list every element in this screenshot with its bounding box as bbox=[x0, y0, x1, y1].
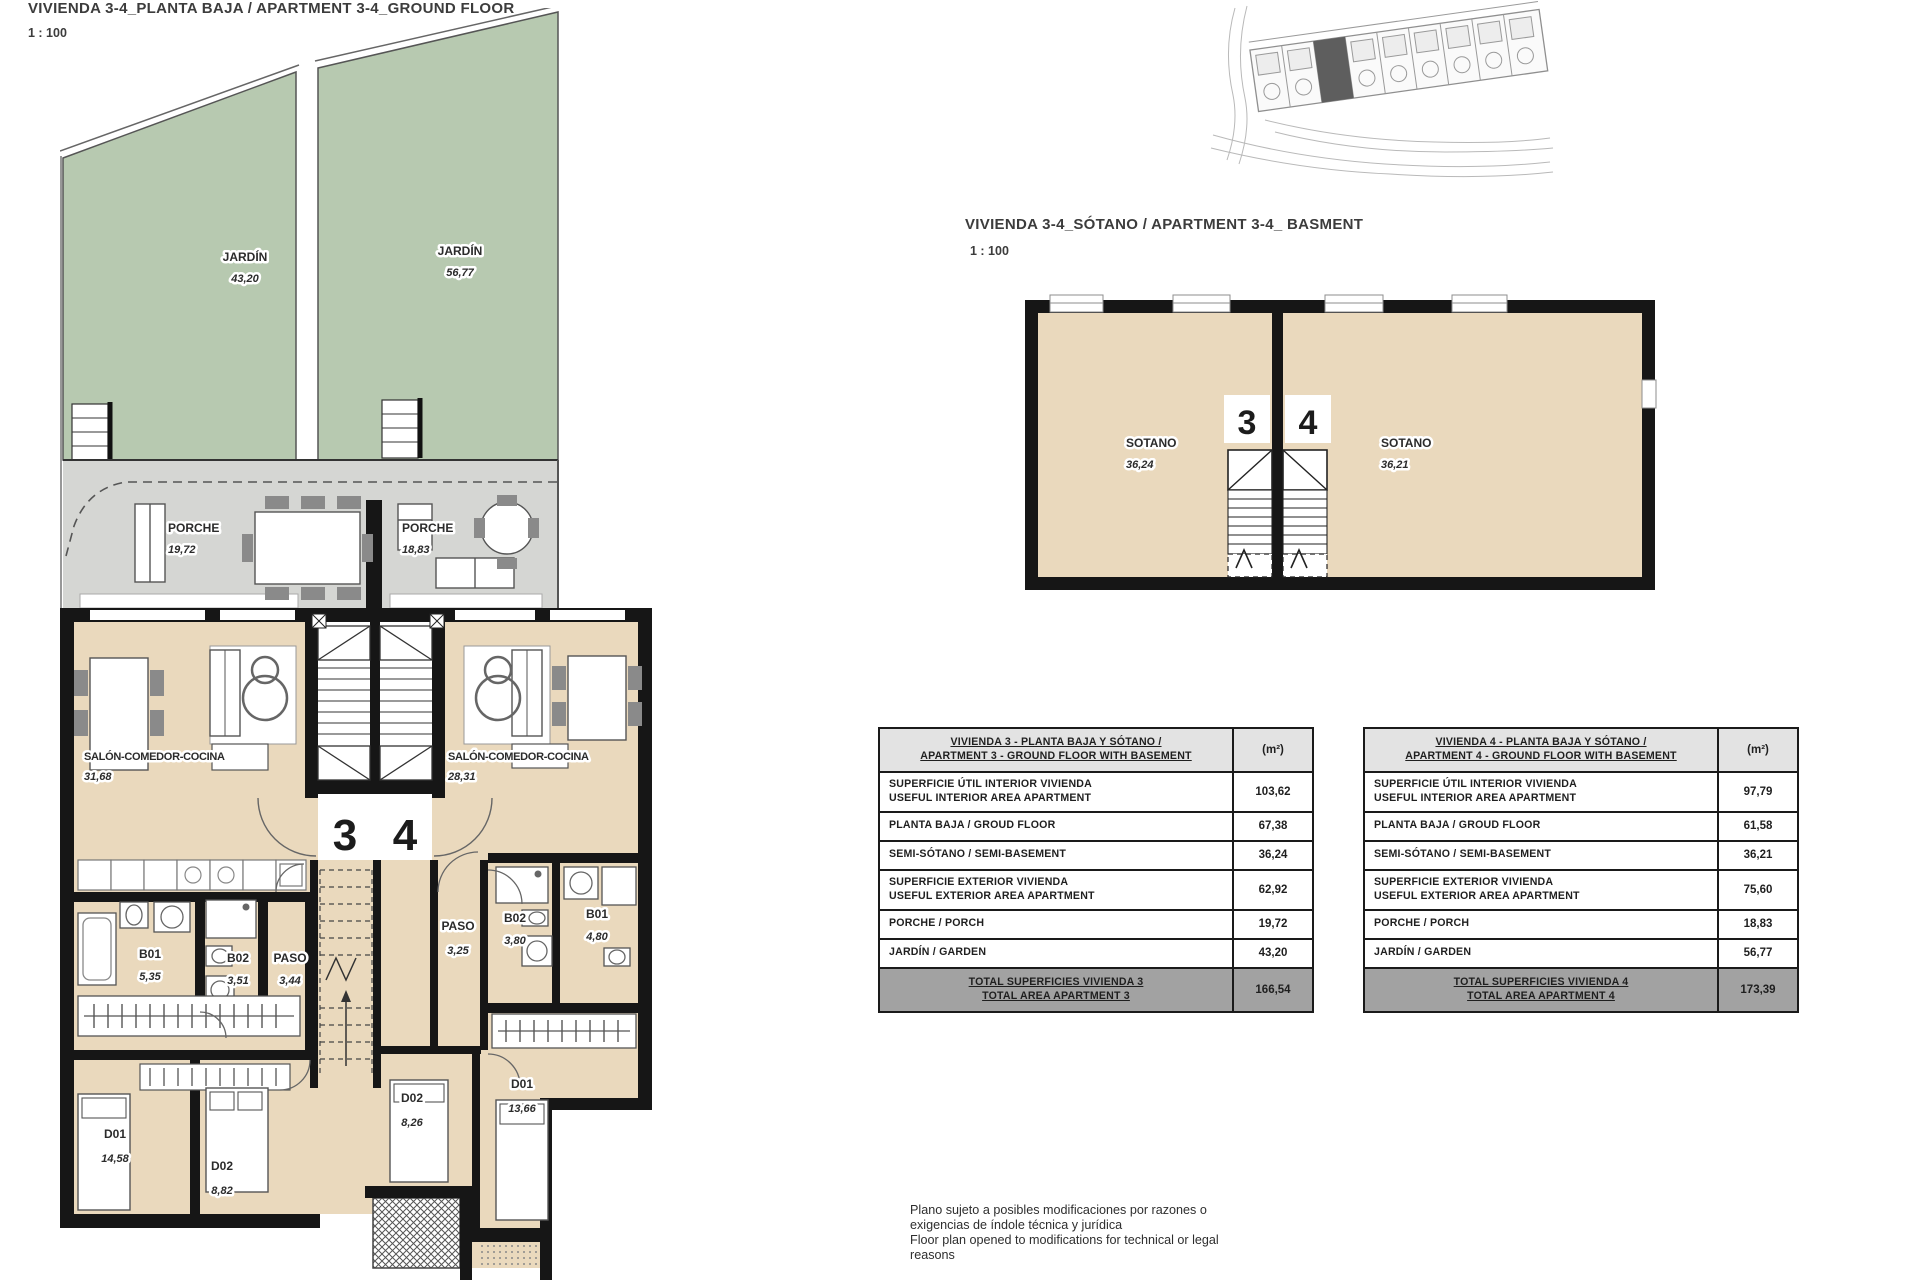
b01-4-area: 4,80 bbox=[585, 931, 608, 943]
d02-4-label: D02 bbox=[401, 1091, 423, 1105]
d01-3-area: 14,58 bbox=[101, 1153, 129, 1165]
b01-4-label: B01 bbox=[586, 907, 608, 921]
table3-total-value: 166,54 bbox=[1232, 969, 1312, 1011]
basement-title: VIVIENDA 3-4_SÓTANO / APARTMENT 3-4_ BAS… bbox=[965, 216, 1363, 233]
wardrobe-d01-3 bbox=[140, 1064, 290, 1090]
basement-unit4-number: 4 bbox=[1299, 404, 1318, 442]
basement-right-window bbox=[1642, 380, 1656, 408]
d02-3-label: D02 bbox=[211, 1159, 233, 1173]
d01-4-area: 13,66 bbox=[508, 1103, 536, 1115]
paso-4-label: PASO bbox=[441, 919, 474, 933]
d02-4-area: 8,26 bbox=[401, 1117, 423, 1129]
d01-4-label: D01 bbox=[511, 1077, 533, 1091]
basement-scale: 1 : 100 bbox=[970, 244, 1009, 258]
garden3-area: 43,20 bbox=[230, 273, 259, 285]
garden-stairs-unit3 bbox=[72, 402, 110, 460]
table-row: PORCHE / PORCH 19,72 bbox=[880, 911, 1312, 940]
wardrobe-unit3 bbox=[78, 996, 300, 1036]
porch4-area: 18,83 bbox=[402, 544, 430, 556]
table3-total-row: TOTAL SUPERFICIES VIVIENDA 3 TOTAL AREA … bbox=[880, 969, 1312, 1011]
table-row: SUPERFICIE ÚTIL INTERIOR VIVIENDA USEFUL… bbox=[880, 773, 1312, 813]
paso-3-label: PASO bbox=[273, 951, 306, 965]
area-table-vivienda-3: VIVIENDA 3 - PLANTA BAJA Y SÓTANO / APAR… bbox=[878, 727, 1314, 1013]
table4-title-line2: APARTMENT 4 - GROUND FLOOR WITH BASEMENT bbox=[1374, 750, 1708, 764]
basement-plan: 3 4 SOTANO 36,24 SOTANO 36,21 bbox=[1023, 292, 1668, 597]
sotano4-label: SOTANO bbox=[1381, 436, 1431, 450]
table3-unit: (m²) bbox=[1232, 729, 1312, 771]
salon4-area: 28,31 bbox=[447, 771, 476, 783]
table-row: SUPERFICIE EXTERIOR VIVIENDA USEFUL EXTE… bbox=[1365, 871, 1797, 911]
table4-total-value: 173,39 bbox=[1717, 969, 1797, 1011]
b02-3-label: B02 bbox=[227, 951, 249, 965]
paso-4-area: 3,25 bbox=[447, 945, 469, 957]
sotano4-area: 36,21 bbox=[1381, 459, 1409, 471]
table-row: SEMI-SÓTANO / SEMI-BASEMENT 36,21 bbox=[1365, 842, 1797, 871]
basement-unit3-number: 3 bbox=[1238, 404, 1257, 442]
patio-crosshatch bbox=[373, 1198, 460, 1268]
table4-total-row: TOTAL SUPERFICIES VIVIENDA 4 TOTAL AREA … bbox=[1365, 969, 1797, 1011]
disclaimer-line1: Plano sujeto a posibles modificaciones p… bbox=[910, 1203, 1250, 1218]
table-row: PLANTA BAJA / GROUD FLOOR 61,58 bbox=[1365, 813, 1797, 842]
table-row: SUPERFICIE ÚTIL INTERIOR VIVIENDA USEFUL… bbox=[1365, 773, 1797, 813]
table-row: SUPERFICIE EXTERIOR VIVIENDA USEFUL EXTE… bbox=[880, 871, 1312, 911]
garden4-area: 56,77 bbox=[446, 267, 474, 279]
wardrobe-unit4 bbox=[492, 1014, 636, 1048]
development-strip bbox=[1249, 2, 1548, 112]
table3-title-line2: APARTMENT 3 - GROUND FLOOR WITH BASEMENT bbox=[889, 750, 1223, 764]
table3-header: VIVIENDA 3 - PLANTA BAJA Y SÓTANO / APAR… bbox=[880, 729, 1312, 773]
unit3-number: 3 bbox=[333, 811, 357, 860]
table4-unit: (m²) bbox=[1717, 729, 1797, 771]
sotano3-area: 36,24 bbox=[1126, 459, 1154, 471]
site-location-map bbox=[1205, 0, 1555, 182]
porch3-area: 19,72 bbox=[168, 544, 196, 556]
patio-gravel bbox=[479, 1240, 540, 1268]
b02-4-label: B02 bbox=[504, 911, 526, 925]
basement-party-wall bbox=[1272, 313, 1283, 577]
b01-3-area: 5,35 bbox=[139, 971, 161, 983]
porch3-label: PORCHE bbox=[168, 521, 219, 535]
disclaimer-line4: reasons bbox=[910, 1248, 1250, 1263]
porch4-label: PORCHE bbox=[402, 521, 453, 535]
b01-3-label: B01 bbox=[139, 947, 161, 961]
salon4-label: SALÓN-COMEDOR-COCINA bbox=[448, 750, 589, 763]
ground-floor-plan: JARDÍN 43,20 JARDÍN 56,77 PORCHE 19,72 P bbox=[60, 8, 700, 1280]
table4-title-line1: VIVIENDA 4 - PLANTA BAJA Y SÓTANO / bbox=[1374, 736, 1708, 750]
table3-title-line1: VIVIENDA 3 - PLANTA BAJA Y SÓTANO / bbox=[889, 736, 1223, 750]
d01-3-label: D01 bbox=[104, 1127, 126, 1141]
b02-4-area: 3,80 bbox=[504, 935, 526, 947]
table-row: SEMI-SÓTANO / SEMI-BASEMENT 36,24 bbox=[880, 842, 1312, 871]
salon3-area: 31,68 bbox=[84, 771, 112, 783]
paso-3-area: 3,44 bbox=[279, 975, 300, 987]
salon3-label: SALÓN-COMEDOR-COCINA bbox=[84, 750, 225, 763]
unit4-number: 4 bbox=[393, 811, 418, 860]
table4-header: VIVIENDA 4 - PLANTA BAJA Y SÓTANO / APAR… bbox=[1365, 729, 1797, 773]
table-row: PLANTA BAJA / GROUD FLOOR 67,38 bbox=[880, 813, 1312, 842]
garden4-label: JARDÍN bbox=[438, 243, 483, 258]
kitchen3-counter bbox=[78, 860, 306, 890]
sotano3-label: SOTANO bbox=[1126, 436, 1176, 450]
table-row: PORCHE / PORCH 18,83 bbox=[1365, 911, 1797, 940]
b02-3-area: 3,51 bbox=[227, 975, 248, 987]
garden3-label: JARDÍN bbox=[223, 249, 268, 264]
table-row: JARDÍN / GARDEN 56,77 bbox=[1365, 940, 1797, 969]
disclaimer-line2: exigencias de índole técnica y jurídica bbox=[910, 1218, 1250, 1233]
garden-unit4 bbox=[315, 8, 561, 460]
table-row: JARDÍN / GARDEN 43,20 bbox=[880, 940, 1312, 969]
disclaimer: Plano sujeto a posibles modificaciones p… bbox=[910, 1203, 1250, 1262]
garden-stairs-unit4 bbox=[382, 398, 420, 458]
d02-3-area: 8,82 bbox=[211, 1185, 232, 1197]
disclaimer-line3: Floor plan opened to modifications for t… bbox=[910, 1233, 1250, 1248]
area-table-vivienda-4: VIVIENDA 4 - PLANTA BAJA Y SÓTANO / APAR… bbox=[1363, 727, 1799, 1013]
